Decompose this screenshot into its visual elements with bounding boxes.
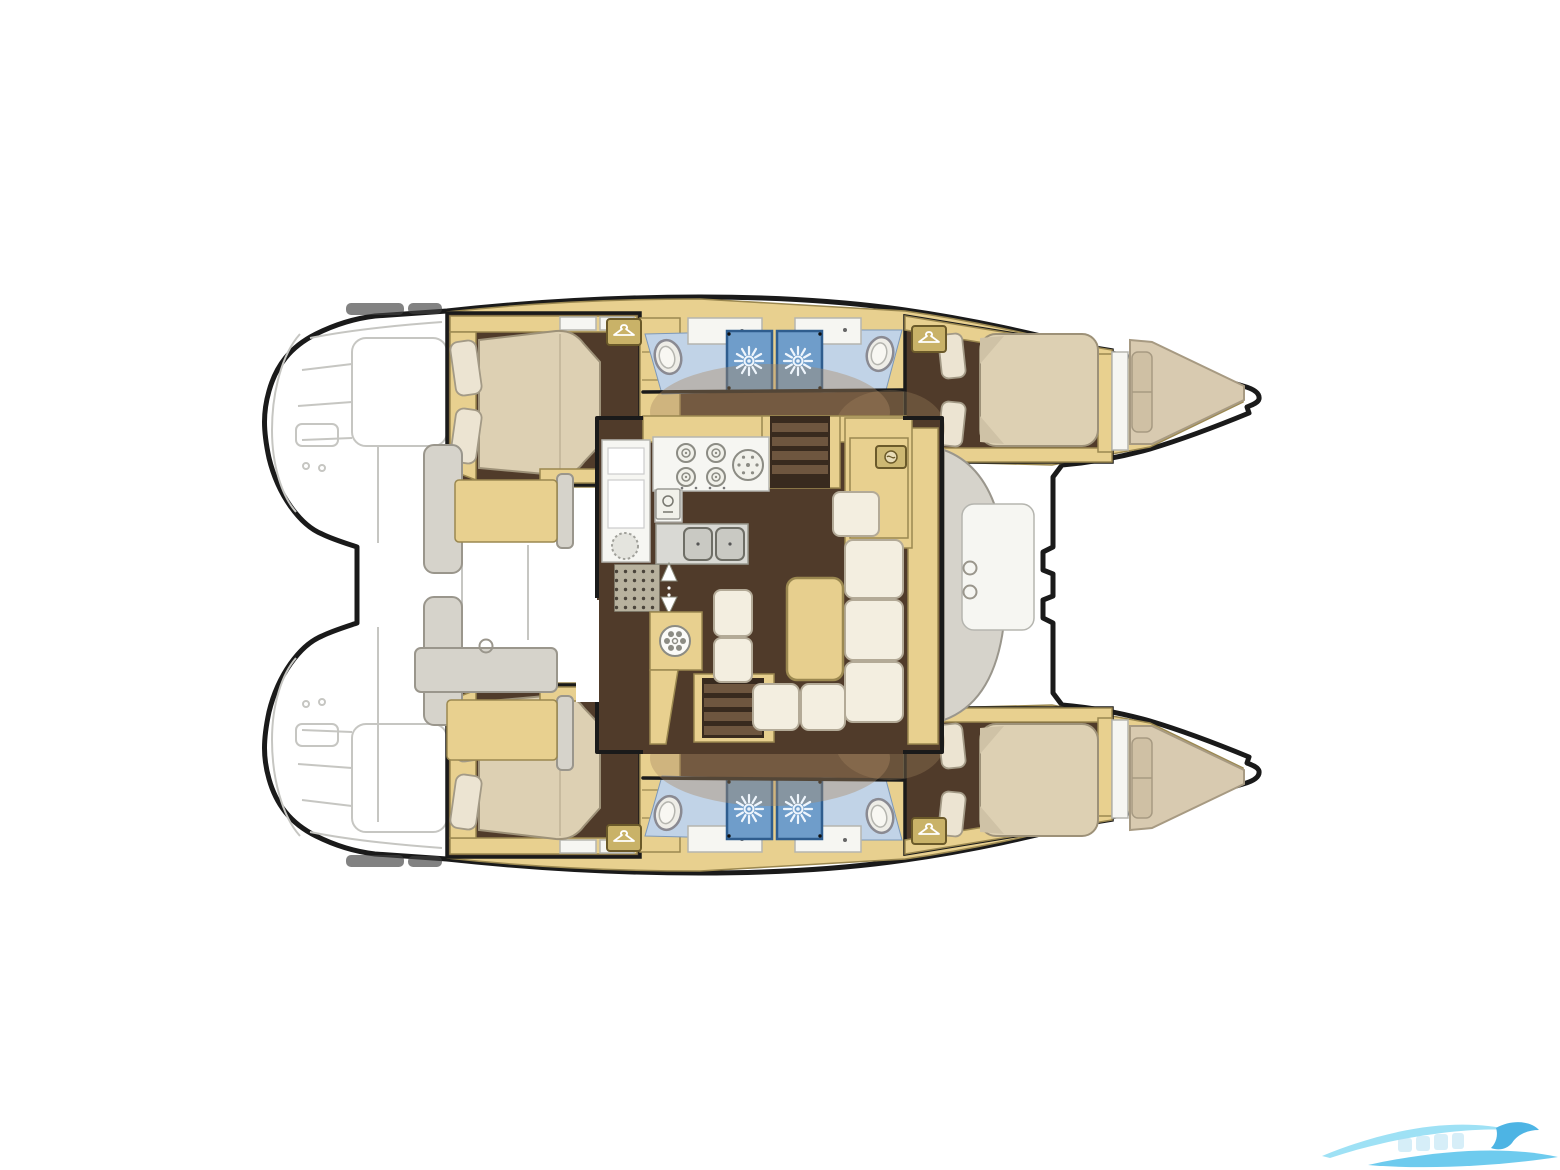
hanger-icon xyxy=(912,326,946,352)
sofa-cushion xyxy=(753,684,799,730)
sliding-door-opening xyxy=(576,600,599,702)
sofa-cushion xyxy=(845,540,903,598)
watermark-dolphin xyxy=(1491,1122,1539,1149)
burner-icon xyxy=(707,444,725,462)
stairs-port-hull xyxy=(762,416,840,488)
cockpit-bench xyxy=(455,480,557,542)
hanger-icon xyxy=(607,825,641,851)
floor-grate xyxy=(615,565,659,611)
burner-icon xyxy=(677,468,695,486)
hanger-icon xyxy=(912,818,946,844)
sofa-cushion xyxy=(714,590,752,636)
hanger-icon xyxy=(607,319,641,345)
faucet-icon xyxy=(656,489,680,519)
cockpit-bench xyxy=(447,700,557,760)
fridge-icon xyxy=(612,533,638,559)
round-sink-icon xyxy=(733,450,763,480)
burner-icon xyxy=(707,468,725,486)
sofa-cushion xyxy=(714,638,752,682)
sofa-cushion xyxy=(801,684,845,730)
catamaran-floorplan: Catamaran interior floor plan (top view) xyxy=(0,0,1560,1170)
sofa-cushion xyxy=(833,492,879,536)
forward-table xyxy=(962,504,1034,630)
wet-bar-icon xyxy=(876,446,906,468)
bench-backrest xyxy=(557,696,573,770)
sofa-cushion xyxy=(845,600,903,660)
double-sink xyxy=(656,524,748,564)
fan-icon xyxy=(660,626,690,656)
cockpit-table xyxy=(415,648,557,692)
saloon-table xyxy=(787,578,843,680)
bench-backrest xyxy=(557,474,573,548)
catamaran-floorplan-image: Catamaran interior floor plan (top view) xyxy=(0,0,1560,1170)
burner-icon xyxy=(677,444,695,462)
watermark-swoosh xyxy=(1322,1122,1558,1167)
sofa-cushion xyxy=(845,662,903,722)
